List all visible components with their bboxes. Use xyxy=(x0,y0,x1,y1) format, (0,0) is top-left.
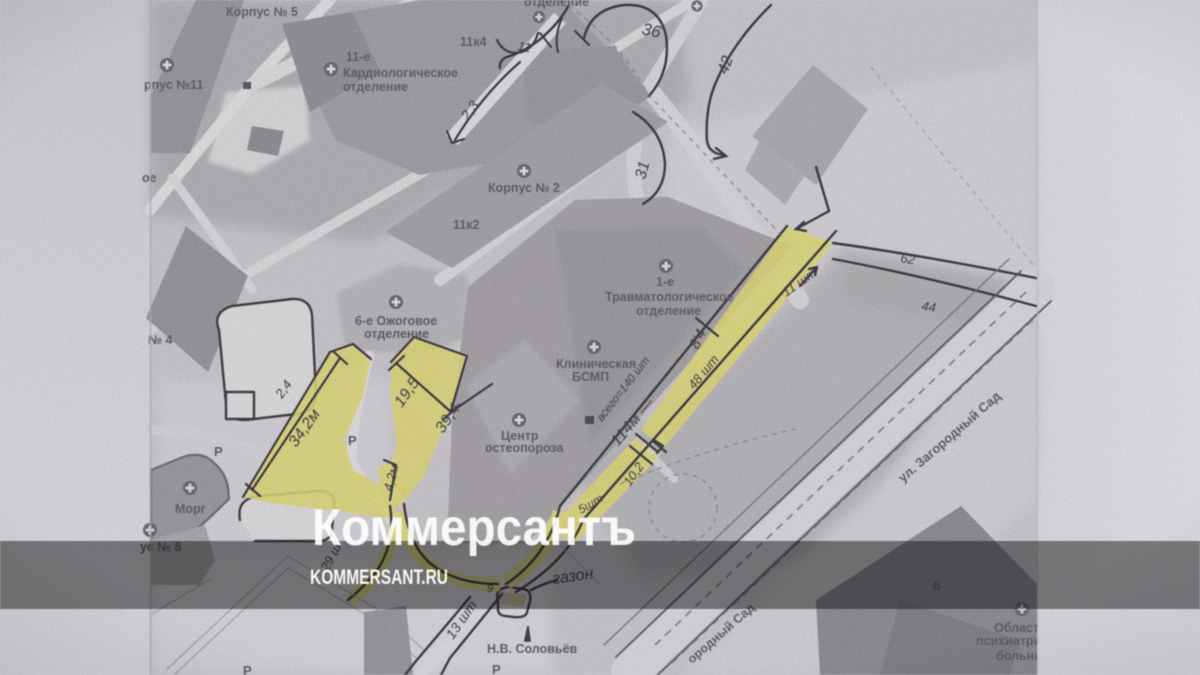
svg-text:Коммерсантъ: Коммерсантъ xyxy=(312,499,636,557)
svg-text:KOMMERSANT.RU: KOMMERSANT.RU xyxy=(310,565,448,589)
